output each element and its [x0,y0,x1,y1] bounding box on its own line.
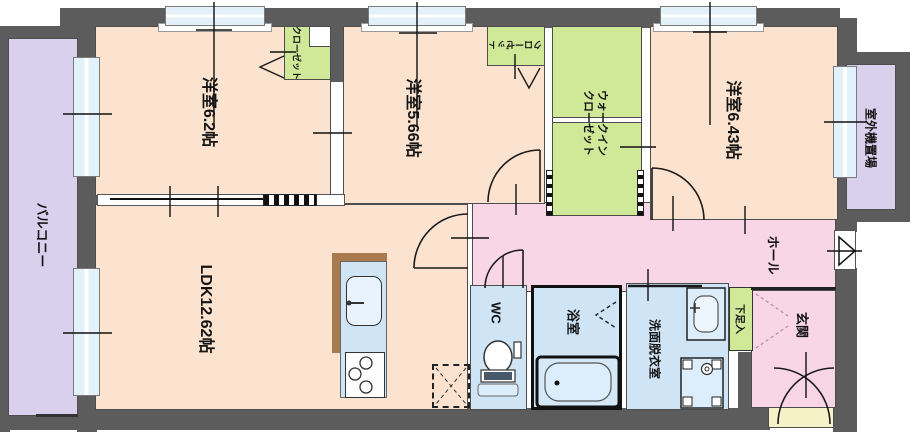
wic-label-line2: クローゼット [580,90,594,156]
wic-door-left [546,170,553,216]
kitchen-sink [346,276,382,326]
floor-plan: バルコニー 洋室6.2帖 クローゼット 洋室5.66帖 クローゼット ウォークイ… [0,0,913,432]
room-washroom [626,283,729,410]
closet1-notch [309,26,331,47]
window-bedroom3-right [833,66,857,178]
window-bedroom1 [165,6,265,26]
balcony-partition [36,414,78,417]
wic-label-line1: ウォークイン [594,90,608,156]
kitchen-counter-top [332,253,387,261]
window-bedroom3 [660,6,757,26]
room-ldk [95,204,468,410]
sliding-door-bed1-ldk [263,194,317,206]
refrigerator-space [432,364,470,408]
window-balcony-ldk [73,268,100,396]
room-entrance [751,290,836,408]
window-balcony-bedroom1 [73,57,100,177]
wic-door-right [637,170,644,216]
kitchen-counter-left [332,253,340,353]
entrance-divider-line [751,287,836,290]
window-bedroom2 [368,6,466,26]
hall-right-door-box [834,230,856,270]
wall-outdoor-bottom [840,208,910,222]
wall-outdoor-right [896,52,910,222]
room-bath [531,285,622,410]
gas-stove [345,352,385,398]
wall-bottom [10,408,740,430]
wall-right-lower [833,268,857,432]
